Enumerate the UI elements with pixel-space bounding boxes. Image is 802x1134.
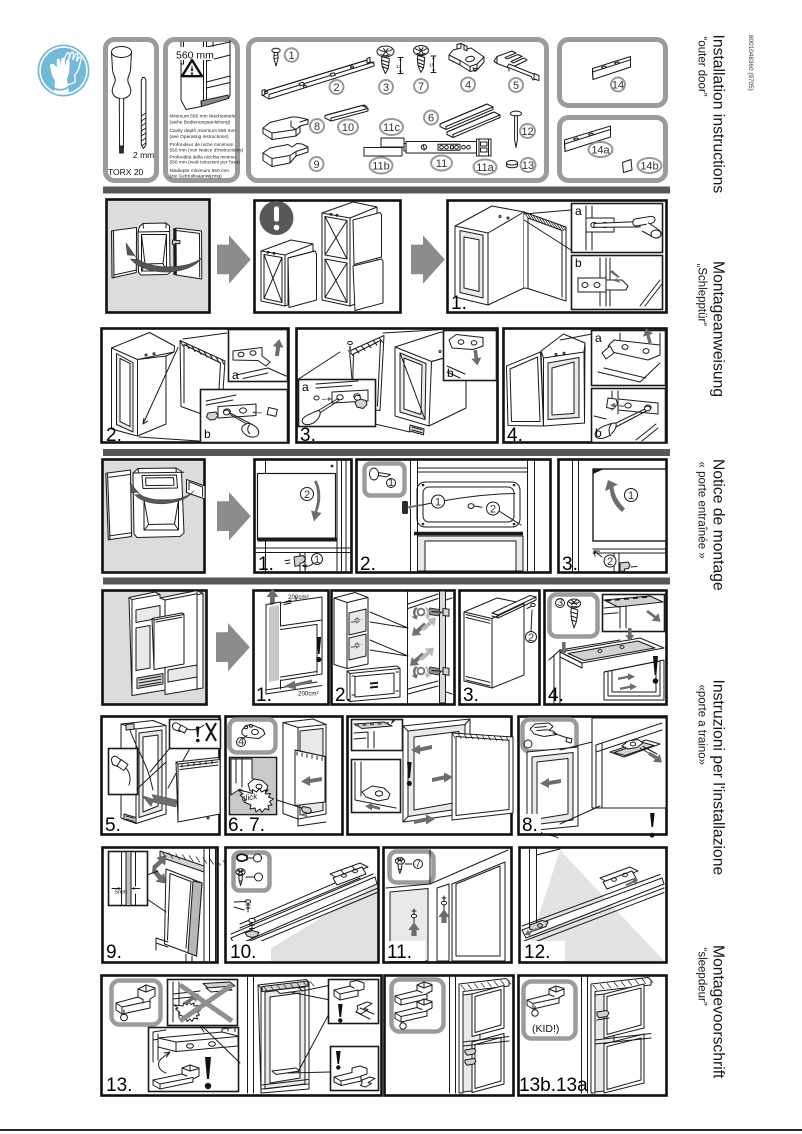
svg-text:10.: 10. xyxy=(230,942,256,963)
svg-text:11b: 11b xyxy=(372,161,390,173)
svg-text:(zie Gebruiksaanwijzing): (zie Gebruiksaanwijzing) xyxy=(170,173,223,179)
svg-text:Installation instructions: Installation instructions xyxy=(710,35,727,194)
svg-text:2 mm: 2 mm xyxy=(133,150,154,160)
svg-text:3.: 3. xyxy=(562,554,578,575)
svg-text:2: 2 xyxy=(333,82,339,94)
svg-text:11: 11 xyxy=(436,158,447,170)
svg-text:9: 9 xyxy=(313,159,319,171)
svg-text:14b: 14b xyxy=(640,161,658,173)
svg-text:a: a xyxy=(595,331,602,345)
svg-text:a: a xyxy=(575,204,582,218)
svg-text:8.: 8. xyxy=(522,815,538,836)
svg-text:2: 2 xyxy=(304,489,310,501)
svg-text:5mm: 5mm xyxy=(115,890,127,896)
svg-text:(KID!): (KID!) xyxy=(532,1023,559,1035)
svg-text:13: 13 xyxy=(396,64,402,70)
svg-text:8001048360 (9705): 8001048360 (9705) xyxy=(747,35,754,91)
svg-text:Montageanweisung: Montageanweisung xyxy=(710,261,727,397)
svg-text:200cm²: 200cm² xyxy=(298,691,319,698)
svg-text:13.: 13. xyxy=(106,1075,132,1096)
svg-text:9.: 9. xyxy=(106,942,122,963)
svg-text:4: 4 xyxy=(465,80,471,92)
svg-text:8: 8 xyxy=(314,121,320,133)
svg-text:6: 6 xyxy=(428,113,434,125)
svg-text:5: 5 xyxy=(513,80,519,92)
svg-text:Profondeur de niche minimum: Profondeur de niche minimum xyxy=(170,142,234,148)
svg-text:4.: 4. xyxy=(548,685,564,706)
svg-text:5.: 5. xyxy=(105,815,121,836)
svg-text:14a: 14a xyxy=(591,145,610,157)
svg-text:1.: 1. xyxy=(451,293,467,314)
svg-text:1: 1 xyxy=(628,490,634,502)
svg-text:12.: 12. xyxy=(524,942,550,963)
svg-text:Instruzioni per l'installazion: Instruzioni per l'installazione xyxy=(710,680,727,876)
svg-text:13: 13 xyxy=(522,160,534,172)
svg-text:1.: 1. xyxy=(258,554,274,575)
svg-text:4.: 4. xyxy=(507,425,523,446)
svg-text:7: 7 xyxy=(415,858,421,870)
svg-text:(see Operating instructions): (see Operating instructions) xyxy=(170,134,229,140)
svg-text:b: b xyxy=(447,366,454,380)
svg-text:a: a xyxy=(302,380,309,394)
svg-text:«porte a traino»: «porte a traino» xyxy=(696,685,708,766)
svg-text:1: 1 xyxy=(314,554,320,566)
svg-text:Montagevoorschrift: Montagevoorschrift xyxy=(710,945,727,1079)
svg-text:2: 2 xyxy=(607,556,613,568)
svg-text:“outer door”: “outer door” xyxy=(696,37,708,97)
svg-text:„Schlepptür“: „Schlepptür“ xyxy=(696,264,708,327)
svg-text:550 mm (voir Notice d'instruct: 550 mm (voir Notice d'instructions) xyxy=(170,147,244,153)
svg-text:Profondità della nicchia minim: Profondità della nicchia minimo xyxy=(170,154,237,160)
svg-text:b: b xyxy=(595,426,602,440)
svg-text:« porte entraînée »: « porte entraînée » xyxy=(696,462,708,559)
svg-text:7: 7 xyxy=(418,81,424,93)
svg-text:14: 14 xyxy=(612,80,624,92)
svg-text:2: 2 xyxy=(528,632,534,644)
svg-text:(siehe Bedienungsanleitung): (siehe Bedienungsanleitung) xyxy=(170,119,231,125)
svg-text:Minimum 550 mm Nischentiefe: Minimum 550 mm Nischentiefe xyxy=(170,114,236,120)
svg-text:Nisdiepte minimum 550 mm: Nisdiepte minimum 550 mm xyxy=(170,168,229,174)
svg-text:3: 3 xyxy=(383,82,389,94)
svg-text:11c: 11c xyxy=(383,122,400,134)
svg-text:1.: 1. xyxy=(256,685,272,706)
svg-text:Cavity depth minimum 550 mm: Cavity depth minimum 550 mm xyxy=(170,128,236,134)
svg-text:11.: 11. xyxy=(387,942,412,963)
svg-text:3: 3 xyxy=(557,597,563,609)
svg-text:560 mm: 560 mm xyxy=(176,50,214,62)
svg-text:1: 1 xyxy=(388,477,394,489)
svg-text:TORX 20: TORX 20 xyxy=(108,167,144,177)
svg-text:b: b xyxy=(204,427,211,441)
svg-text:2.: 2. xyxy=(360,554,376,575)
svg-text:1: 1 xyxy=(288,50,294,62)
svg-text:Notice de montage: Notice de montage xyxy=(710,459,727,591)
svg-text:550 mm (vedi Istruzioni per l': 550 mm (vedi Istruzioni per l'uso) xyxy=(170,160,241,166)
svg-text:2.: 2. xyxy=(106,425,122,446)
svg-text:11a: 11a xyxy=(476,162,494,174)
svg-text:1: 1 xyxy=(435,497,441,509)
svg-text:6. 7.: 6. 7. xyxy=(228,815,265,836)
svg-text:2: 2 xyxy=(490,504,496,516)
svg-text:b: b xyxy=(575,256,582,270)
svg-text:2.: 2. xyxy=(335,685,351,706)
svg-text:3.: 3. xyxy=(300,425,316,446)
svg-text:15: 15 xyxy=(429,63,435,69)
svg-text:13b.13a: 13b.13a xyxy=(519,1075,588,1096)
svg-text:“sleepdeur”: “sleepdeur” xyxy=(696,948,708,1006)
svg-text:3.: 3. xyxy=(463,685,479,706)
svg-text:10: 10 xyxy=(342,122,354,134)
svg-text:a: a xyxy=(232,368,239,382)
svg-text:12: 12 xyxy=(521,126,533,138)
